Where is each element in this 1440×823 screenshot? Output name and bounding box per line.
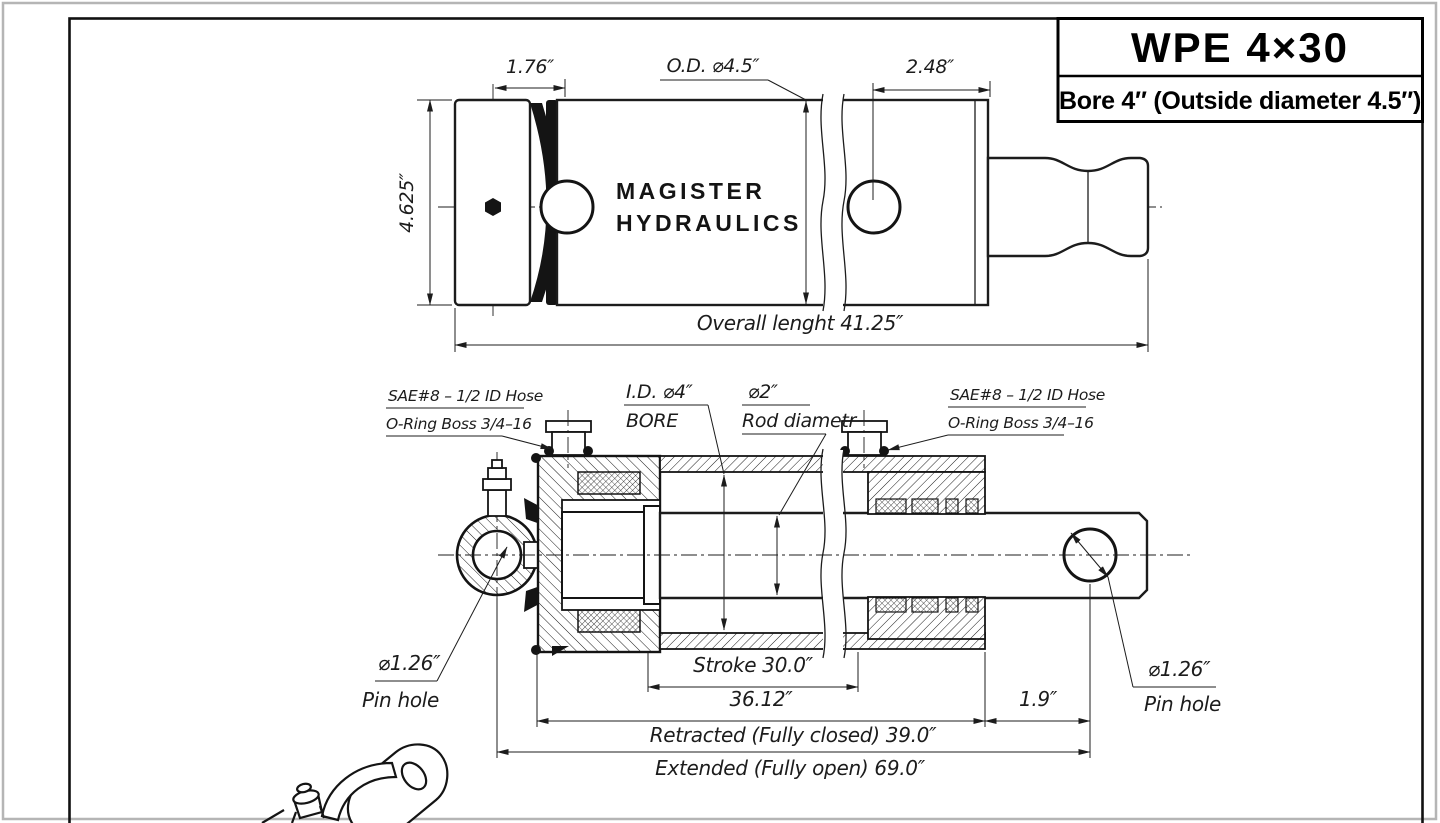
svg-text:⌀1.26″: ⌀1.26″ (378, 651, 441, 675)
grease-fitting (483, 460, 511, 516)
hydraulic-cylinder-drawing: WPE 4×30 Bore 4″ (Outside diameter 4.5″)… (0, 0, 1440, 823)
dim-extended: Extended (Fully open) 69.0″ (655, 756, 926, 780)
svg-text:⌀2″: ⌀2″ (748, 381, 778, 403)
svg-text:Rod diametr: Rod diametr (742, 410, 858, 432)
svg-text:SAE#8 – 1/2 ID Hose: SAE#8 – 1/2 ID Hose (388, 387, 543, 405)
svg-text:O-Ring Boss 3/4–16: O-Ring Boss 3/4–16 (386, 415, 532, 433)
dim-retracted: Retracted (Fully closed) 39.0″ (650, 723, 937, 747)
brand-line2: HYDRAULICS (616, 210, 802, 236)
svg-text:Pin hole: Pin hole (1144, 692, 1221, 716)
model-name: WPE 4×30 (1131, 24, 1349, 71)
rod-side-view (988, 158, 1148, 256)
svg-text:Stroke 30.0″: Stroke 30.0″ (693, 653, 813, 677)
svg-text:2.48″: 2.48″ (906, 56, 954, 78)
port-boss-right (848, 181, 900, 233)
port-boss-left (541, 181, 593, 233)
svg-text:1.9″: 1.9″ (1019, 687, 1058, 711)
rear-head-section (531, 453, 660, 656)
svg-text:BORE: BORE (626, 410, 678, 432)
svg-text:36.12″: 36.12″ (730, 687, 794, 711)
brand-line1: MAGISTER (616, 178, 765, 204)
svg-text:Overall lenght 41.25″: Overall lenght 41.25″ (697, 311, 904, 335)
svg-text:O-Ring Boss 3/4–16: O-Ring Boss 3/4–16 (948, 414, 1094, 432)
svg-text:1.76″: 1.76″ (506, 56, 554, 78)
svg-text:Pin hole: Pin hole (362, 688, 439, 712)
model-subtitle: Bore 4″ (Outside diameter 4.5″) (1059, 87, 1421, 115)
tube-wall-top (660, 456, 985, 472)
svg-text:O.D. ⌀4.5″: O.D. ⌀4.5″ (667, 55, 760, 77)
svg-text:I.D. ⌀4″: I.D. ⌀4″ (626, 381, 693, 403)
svg-text:SAE#8 – 1/2 ID Hose: SAE#8 – 1/2 ID Hose (950, 386, 1105, 404)
svg-text:⌀1.26″: ⌀1.26″ (1148, 657, 1211, 681)
svg-text:4.625″: 4.625″ (396, 173, 418, 233)
title-block: WPE 4×30 Bore 4″ (Outside diameter 4.5″) (1058, 19, 1423, 122)
